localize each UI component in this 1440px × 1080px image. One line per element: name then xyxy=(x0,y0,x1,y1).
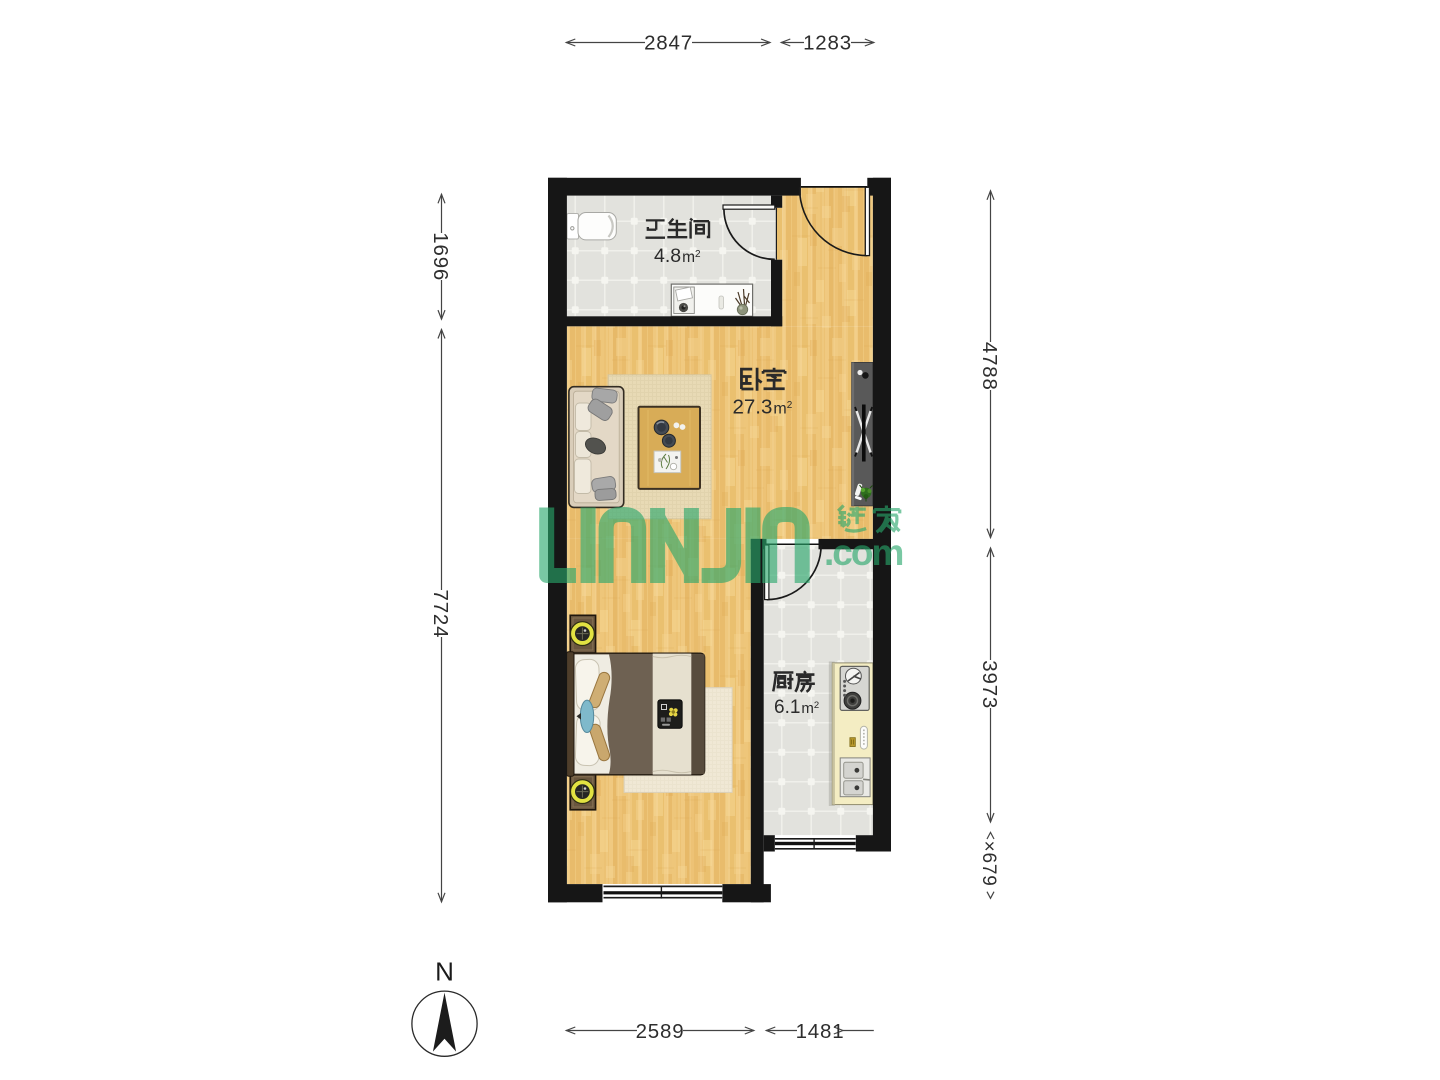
svg-text:2589: 2589 xyxy=(636,1020,685,1043)
svg-text:4.8m2: 4.8m2 xyxy=(654,245,701,267)
svg-text:7724: 7724 xyxy=(429,589,452,638)
svg-text:4788: 4788 xyxy=(978,342,1001,391)
svg-text:3973: 3973 xyxy=(978,660,1001,709)
svg-text:1283: 1283 xyxy=(803,31,852,54)
svg-text:1696: 1696 xyxy=(429,232,452,281)
svg-text:1481: 1481 xyxy=(796,1020,845,1043)
svg-text:×679: ×679 xyxy=(978,841,999,887)
svg-text:6.1m2: 6.1m2 xyxy=(774,697,819,718)
svg-text:2847: 2847 xyxy=(644,31,693,54)
svg-text:N: N xyxy=(435,957,454,987)
svg-text:.com: .com xyxy=(824,532,902,573)
